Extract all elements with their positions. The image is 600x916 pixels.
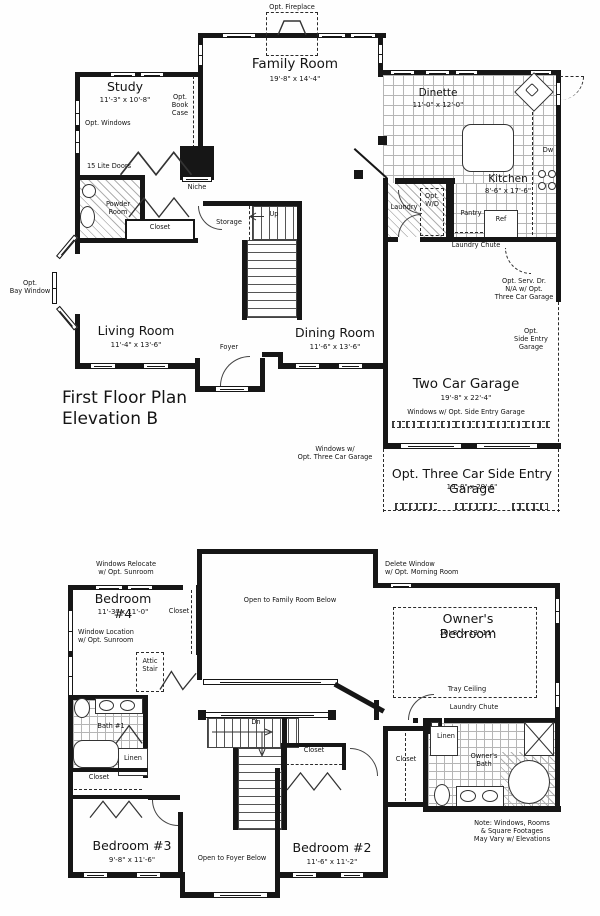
window [143, 363, 169, 369]
opt-windows-strip [455, 503, 497, 510]
cooktop-burner [538, 170, 546, 178]
shower-icon [524, 722, 554, 756]
wall [242, 240, 247, 320]
closet-dashed-line [191, 590, 192, 654]
window [292, 872, 317, 878]
cooktop-burner [548, 170, 556, 178]
window [555, 598, 560, 624]
sink [460, 790, 476, 802]
window [318, 33, 346, 38]
tray-ceiling-label: Tray Ceiling [443, 686, 491, 694]
closet-rod-line [405, 733, 406, 801]
bedroom2-label: Bedroom #2 [286, 841, 378, 856]
wall [233, 748, 238, 830]
owners-bedroom-dims: 19'-8" x 13'-11" [436, 629, 498, 637]
windows-side-entry-label: Windows w/ Opt. Side Entry Garage [400, 409, 532, 417]
window [455, 70, 478, 75]
lite-doors-label: 15 Lite Doors [86, 163, 132, 171]
window [140, 72, 164, 77]
living-room-label: Living Room [95, 324, 177, 339]
double-door-icon [287, 770, 341, 792]
sink [120, 700, 135, 711]
dining-room-dims: 11'-6" x 13'-6" [300, 343, 370, 351]
wall [423, 718, 428, 812]
window [555, 682, 560, 708]
up-label: Up [264, 211, 284, 219]
wall [197, 549, 202, 680]
wall [446, 183, 454, 237]
sink [99, 700, 114, 711]
closet-shelf-line [286, 764, 342, 765]
dinette-label: Dinette [408, 87, 468, 99]
window [390, 583, 412, 588]
linen-label: Linen [432, 733, 460, 741]
ref-label: Ref [488, 216, 514, 224]
living-room-dims: 11'-4" x 13'-6" [99, 341, 173, 349]
cooktop-burner [548, 182, 556, 190]
wall [383, 237, 398, 242]
wall [281, 743, 285, 770]
window-location-label: Window Location w/ Opt. Sunroom [78, 629, 142, 645]
sink [482, 790, 498, 802]
wall [383, 807, 388, 878]
bedroom4-door-icon [160, 668, 198, 692]
closet-label: Closet [293, 747, 335, 755]
window-row [203, 679, 338, 685]
bath1-tub [73, 740, 119, 768]
wall [423, 806, 561, 812]
window [390, 70, 415, 75]
foyer-label: Foyer [208, 344, 250, 352]
three-car-garage-dims: 19'-8" x 29'-6" [438, 483, 506, 491]
window [222, 33, 256, 38]
window [198, 44, 203, 66]
wall [383, 726, 388, 807]
window [68, 610, 73, 652]
dw-label: Dw [540, 147, 556, 155]
opt-book-case-label: Opt. Book Case [167, 94, 193, 117]
bath1-label: Bath #1 [90, 723, 132, 731]
newel-post [198, 710, 206, 720]
study-label: Study [95, 80, 155, 95]
toilet [434, 784, 450, 806]
wall [374, 700, 379, 720]
window [90, 363, 116, 369]
opt-bay-window-label: Opt. Bay Window [4, 280, 56, 296]
kitchen-label: Kitchen [480, 173, 536, 185]
closet-label: Closet [133, 224, 187, 232]
attic-stair-label: Attic Stair [138, 658, 162, 674]
dinette-dims: 11'-0" x 12'-0" [408, 101, 468, 109]
front-door-sill [215, 386, 249, 392]
two-car-garage-label: Two Car Garage [400, 377, 532, 393]
window [425, 70, 450, 75]
plan-title: First Floor Plan Elevation B [62, 388, 202, 431]
window [213, 892, 268, 898]
note-text: Note: Windows, Rooms & Square Footages M… [458, 820, 566, 843]
floor-plan-sheet: Opt. Fireplace Family Room 19'-8" x 14'-… [0, 0, 600, 916]
counter-edge [532, 92, 533, 235]
column-post [378, 136, 387, 145]
pantry-label: Pantry [455, 210, 487, 218]
open-foyer-label: Open to Foyer Below [188, 855, 276, 863]
laundry-chute-label: Laundry Chute [445, 242, 507, 250]
opt-wd-label: Opt. W/D [421, 193, 443, 209]
window [127, 585, 153, 590]
opt-garage-dashed-wall [383, 510, 560, 511]
window [110, 72, 136, 77]
opt-windows-strip [395, 503, 437, 510]
bedroom3-label: Bedroom #3 [90, 839, 174, 854]
opt-windows-label: Opt. Windows [85, 120, 133, 128]
closet-label: Closet [388, 756, 424, 764]
wall [262, 352, 283, 357]
dashed-wall-opt-side-entry [558, 302, 559, 447]
double-door-icon [90, 798, 142, 820]
wall [75, 238, 80, 254]
linen-closet [430, 726, 458, 756]
windows-three-car-label: Windows w/ Opt. Three Car Garage [292, 446, 378, 462]
window [378, 44, 383, 64]
window [95, 585, 123, 590]
garage-door-opening [476, 443, 538, 449]
linen-label: Linen [119, 755, 147, 763]
bedroom2-dims: 11'-6" x 11'-2" [296, 858, 368, 866]
wall [342, 743, 346, 770]
owners-tub [508, 760, 550, 804]
delete-window-label: Delete Window w/ Opt. Morning Room [385, 561, 467, 577]
kitchen-island [462, 124, 514, 172]
bedroom3-dims: 9'-8" x 11'-6" [100, 856, 164, 864]
powder-sink [82, 184, 96, 198]
window [295, 363, 320, 369]
window [75, 100, 80, 126]
wall [68, 768, 148, 772]
opt-side-entry-label: Opt. Side Entry Garage [506, 328, 556, 351]
opt-bookcase-dashed-line [193, 76, 194, 148]
front-door-swing [220, 356, 250, 386]
wall [373, 549, 378, 587]
bedroom4-label: Bedroom #4 [84, 592, 162, 622]
window [338, 363, 363, 369]
column-post [354, 170, 363, 179]
wall [383, 726, 428, 731]
storage-label: Storage [208, 219, 250, 227]
study-dims: 11'-3" x 10'-8" [92, 96, 158, 104]
closet-label: Closet [163, 608, 195, 616]
fireplace-icon [275, 18, 309, 36]
family-room-dims: 19'-8" x 14'-4" [255, 75, 335, 83]
dining-room-label: Dining Room [293, 326, 377, 341]
opt-garage-dashed-wall [558, 449, 559, 512]
opt-garage-dashed-wall [383, 449, 384, 512]
dn-label: Dn [245, 719, 267, 727]
window [68, 656, 73, 696]
wall [178, 812, 183, 877]
closet-label: Closet [78, 774, 120, 782]
niche-sill [182, 176, 212, 182]
three-car-garage-label: Opt. Three Car Side Entry Garage [388, 467, 556, 497]
two-car-garage-dims: 19'-8" x 22'-4" [429, 394, 503, 402]
cooktop-burner [538, 182, 546, 190]
laundry-label: Laundry [386, 204, 422, 212]
up-arrow-icon [248, 212, 264, 221]
niche-label: Niche [181, 184, 213, 192]
wall [383, 369, 388, 449]
laundry-chute-label: Laundry Chute [446, 704, 502, 712]
opt-fireplace-label: Opt. Fireplace [252, 4, 332, 12]
window [75, 130, 80, 154]
open-family-label: Open to Family Room Below [228, 597, 352, 605]
wall [68, 585, 183, 590]
window [83, 872, 108, 878]
opt-service-door-swing-dashed [505, 248, 531, 274]
windows-relocate-label: Windows Relocate w/ Opt. Sunroom [86, 561, 166, 577]
wall [197, 549, 378, 554]
opt-door-swing-dashed [560, 76, 584, 100]
bedroom4-dims: 11'-3" x 11'-0" [92, 608, 154, 616]
bedroom2-door-swing [350, 748, 378, 776]
opt-windows-strip [512, 503, 548, 510]
wall [297, 201, 302, 320]
closet-rod-line [74, 789, 142, 790]
powder-room-label: Powder Room [96, 201, 140, 217]
opt-windows-strip [392, 421, 550, 428]
toilet [74, 698, 90, 718]
wall [383, 802, 428, 807]
pantry-shelf-line [455, 232, 483, 233]
opt-service-door-label: Opt. Serv. Dr. N/A w/ Opt. Three Car Gar… [492, 278, 556, 301]
window [136, 872, 161, 878]
bedroom3-door-swing [152, 800, 178, 826]
window [340, 872, 364, 878]
window [350, 33, 376, 38]
powder-toilet [80, 206, 95, 228]
wall [75, 314, 80, 369]
newel-post [328, 710, 336, 720]
owners-bath-label: Owner's Bath [462, 753, 506, 769]
kitchen-dims: 8'-6" x 17'-6" [481, 187, 535, 195]
garage-door-opening [400, 443, 462, 449]
down-turn-arrow-icon [258, 732, 266, 758]
stairs-lower-run [247, 240, 297, 318]
wall [75, 72, 200, 77]
family-room-label: Family Room [240, 57, 350, 73]
